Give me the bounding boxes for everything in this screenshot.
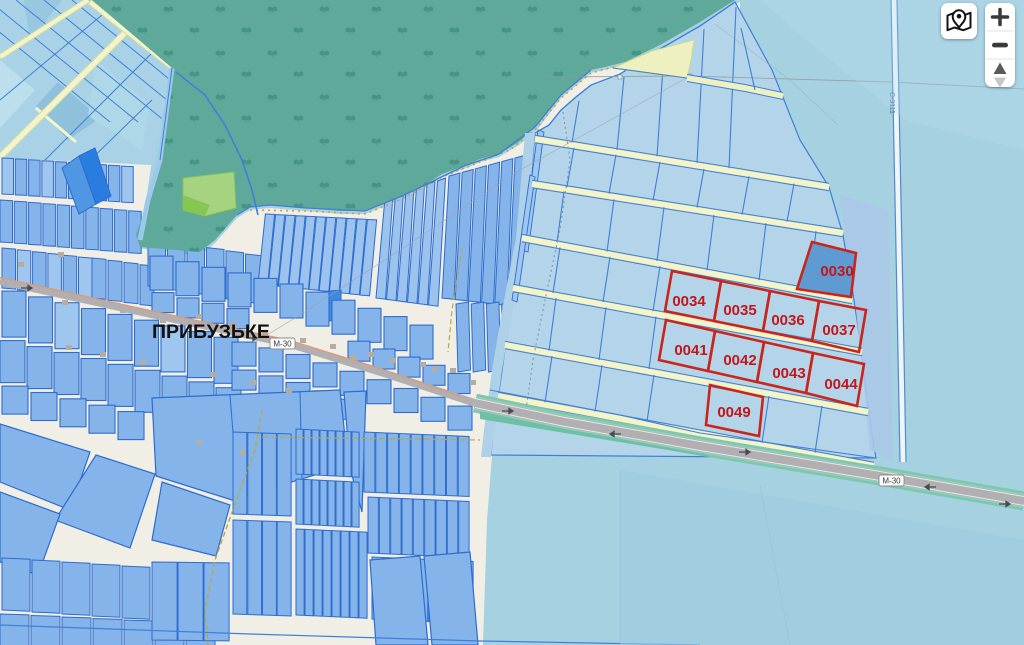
svg-text:0030: 0030 [820, 263, 853, 280]
svg-text:0037: 0037 [822, 322, 855, 339]
svg-text:0036: 0036 [771, 312, 804, 329]
svg-text:0041: 0041 [674, 342, 707, 359]
svg-text:М-30: М-30 [882, 477, 901, 486]
svg-text:0043: 0043 [772, 365, 805, 382]
svg-text:0034: 0034 [672, 293, 706, 310]
svg-text:0035: 0035 [723, 302, 756, 319]
svg-text:0042: 0042 [723, 352, 756, 369]
svg-text:0044: 0044 [824, 376, 858, 393]
svg-text:0049: 0049 [717, 404, 750, 421]
svg-text:ПРИБУЗЬКЕ: ПРИБУЗЬКЕ [152, 321, 270, 343]
svg-text:М-30: М-30 [273, 340, 292, 349]
